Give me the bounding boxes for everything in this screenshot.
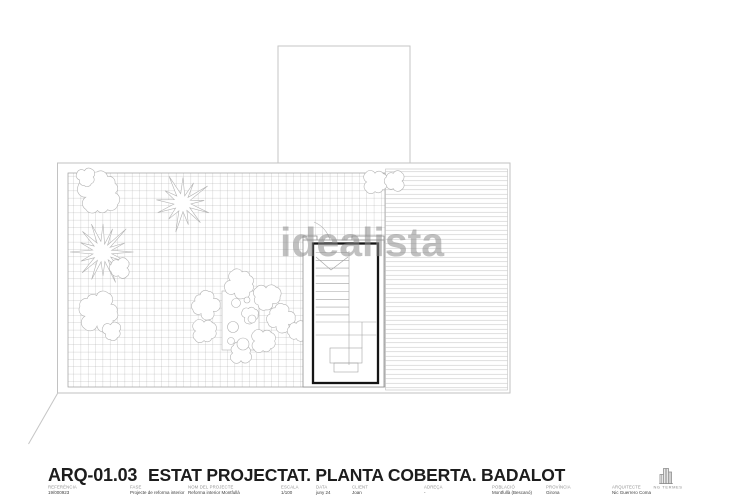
- watermark: idealista: [280, 222, 444, 263]
- striped-roof: [386, 169, 508, 390]
- upper-volume-outline: [278, 46, 410, 163]
- plant-pot: [248, 315, 256, 323]
- plant-pot: [232, 299, 241, 308]
- ground-line: [29, 394, 58, 445]
- plant-pot: [228, 338, 235, 345]
- plant-pot: [237, 338, 249, 350]
- plant-pot: [244, 297, 250, 303]
- plant-pot: [228, 322, 239, 333]
- drawing-sheet: idealista ARQ-01.03 ESTAT PROJECTAT. PLA…: [0, 0, 750, 500]
